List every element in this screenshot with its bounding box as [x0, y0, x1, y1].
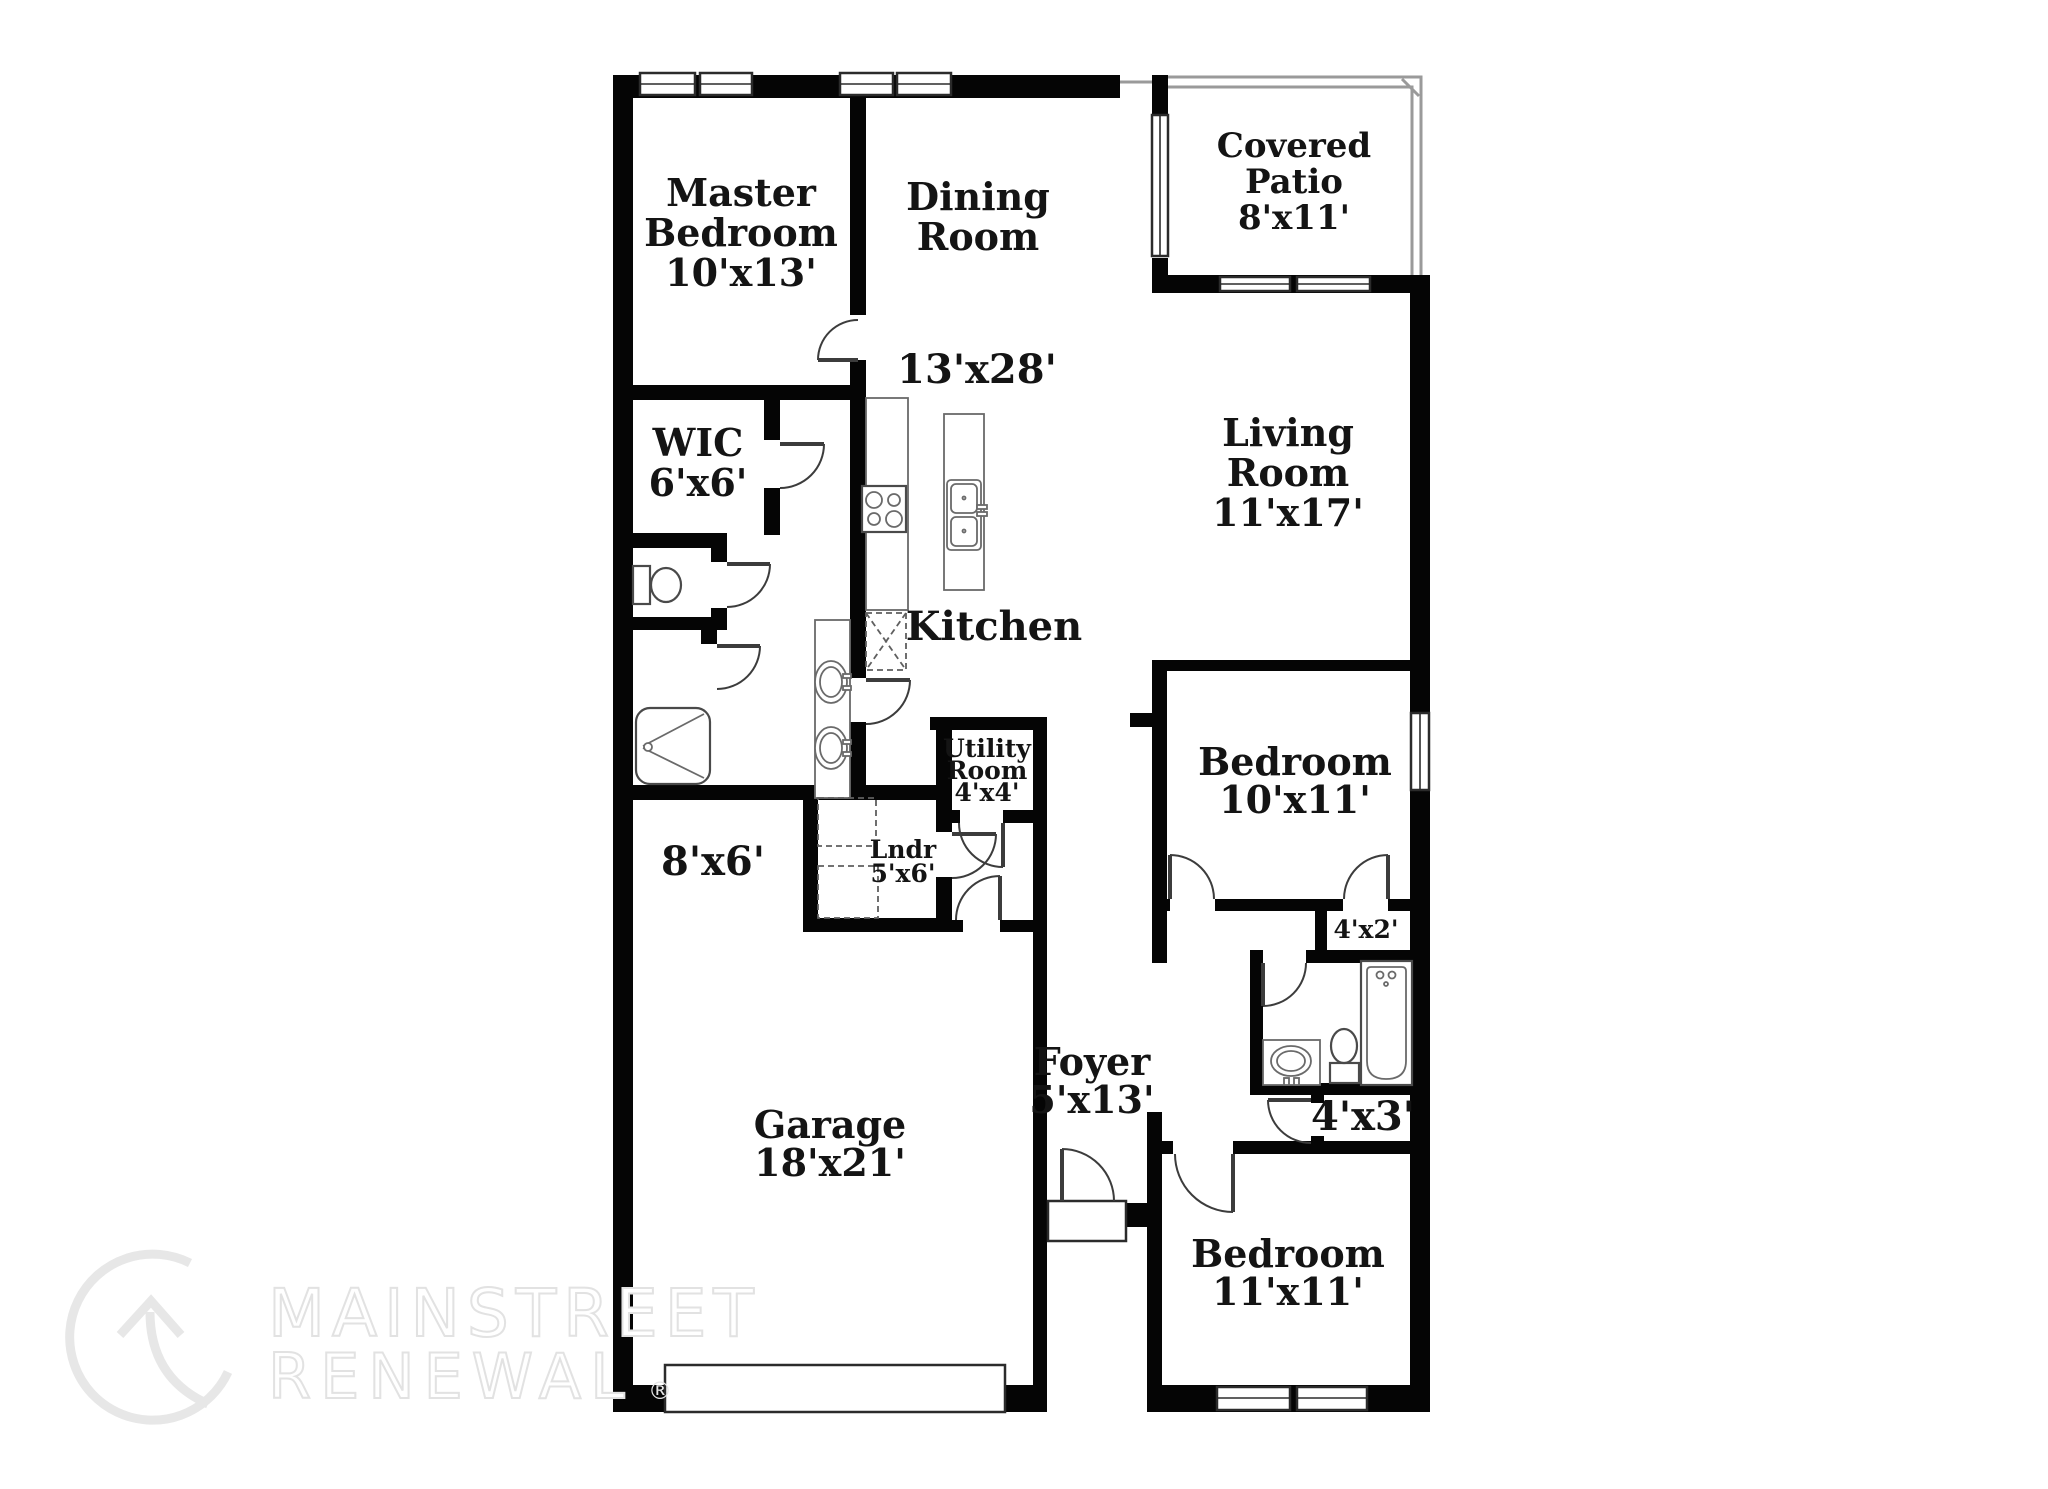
label-closet-4x2: 4'x2' [1333, 915, 1398, 944]
door-utility [959, 823, 1003, 867]
label-living-room: LivingRoom11'x17' [1212, 410, 1364, 535]
wall-segment [803, 800, 818, 932]
hall-bath-vanity [1263, 1040, 1320, 1085]
wall-segment [936, 877, 952, 932]
wall-segment [1000, 920, 1033, 932]
wall-segment [1315, 911, 1327, 950]
door-hall-bathroom [1263, 963, 1306, 1006]
master-vanity [815, 620, 851, 798]
wall-segment [1152, 258, 1168, 293]
label-great-room-dimension: 13'x28' [897, 346, 1057, 393]
door-closet-4x3 [1268, 1100, 1311, 1143]
wall-segment [1152, 660, 1167, 963]
washer [818, 798, 876, 846]
door-front-entry [1062, 1149, 1114, 1201]
window [840, 73, 893, 95]
registered-trademark-icon: ® [648, 1377, 672, 1405]
door-toilet-room [727, 564, 770, 607]
wall-segment [1162, 1141, 1173, 1154]
wall-segment [952, 920, 963, 932]
pantry-cabinet [866, 613, 906, 670]
floor-plan: MasterBedroom10'x13' DiningRoom CoveredP… [0, 0, 2048, 1489]
wall-segment [1152, 899, 1170, 911]
label-garage: Garage18'x21' [754, 1102, 906, 1185]
wall-segment [1410, 275, 1430, 1412]
wall-segment [711, 548, 727, 562]
door-hall-to-foyer [956, 876, 1000, 920]
shower [636, 708, 710, 784]
patio-sliding-door [1297, 277, 1370, 291]
door-bedroom-2 [1170, 855, 1214, 899]
wall-segment [930, 717, 1047, 730]
window [700, 73, 752, 95]
label-bedroom-3: Bedroom11'x11' [1191, 1231, 1385, 1314]
wall-segment [764, 400, 780, 440]
wall-segment [613, 785, 952, 800]
door-bedroom-3 [1175, 1154, 1233, 1212]
mainstreet-renewal-logo-icon [70, 1254, 228, 1420]
label-master-bedroom: MasterBedroom10'x13' [644, 170, 838, 295]
wall-segment [701, 630, 717, 644]
wall-segment [850, 98, 866, 315]
wall-segment [803, 918, 952, 932]
bathtub [1361, 961, 1412, 1085]
label-closet-4x3: 4'x3' [1311, 1093, 1415, 1140]
wall-segment [1233, 1141, 1430, 1154]
label-dining-room: DiningRoom [906, 174, 1050, 259]
master-toilet [633, 566, 681, 604]
label-wic: WIC6'x6' [649, 420, 748, 505]
wall-segment [1147, 1112, 1162, 1410]
window [1152, 115, 1168, 256]
stove [862, 486, 906, 532]
label-garage-storage: 8'x6' [661, 838, 765, 885]
label-covered-patio: CoveredPatio8'x11' [1217, 126, 1371, 238]
watermark: MAINSTREET RENEWAL ® [70, 1254, 761, 1420]
wall-segment [1152, 75, 1168, 115]
watermark-brand-line2: RENEWAL [268, 1340, 634, 1413]
wall-segment [764, 488, 780, 535]
dryer [818, 866, 878, 918]
garage-door [665, 1365, 1005, 1412]
window [1217, 1387, 1290, 1410]
wall-segment [1152, 660, 1415, 671]
window [897, 73, 951, 95]
door-closet-4x2 [1344, 855, 1388, 899]
window [1297, 1387, 1367, 1410]
patio-sliding-door [1220, 277, 1290, 291]
hall-bath-toilet [1330, 1029, 1359, 1083]
label-utility-room: UtilityRoom4'x4' [943, 734, 1032, 807]
label-foyer: Foyer5'x13' [1029, 1039, 1154, 1122]
wall-segment [1130, 713, 1152, 727]
wall-segment [1388, 899, 1415, 911]
window [640, 73, 695, 95]
wall-segment [613, 75, 633, 1412]
window [1411, 713, 1429, 790]
wall-segment [613, 385, 866, 400]
wall-segment [1215, 899, 1343, 911]
wall-segment [711, 608, 727, 630]
entry-threshold [1048, 1201, 1126, 1241]
label-bedroom-2: Bedroom10'x11' [1198, 739, 1392, 822]
label-laundry: Lndr5'x6' [870, 835, 937, 888]
island-double-sink [947, 480, 987, 550]
wall-segment [613, 617, 711, 630]
wall-segment [936, 810, 960, 823]
door-shower-area [717, 646, 760, 689]
door-wic [780, 444, 824, 488]
wall-segment [613, 533, 727, 548]
door-kitchen-to-master-hall [866, 680, 910, 724]
door-master-bedroom [818, 320, 858, 360]
label-kitchen: Kitchen [906, 603, 1082, 650]
